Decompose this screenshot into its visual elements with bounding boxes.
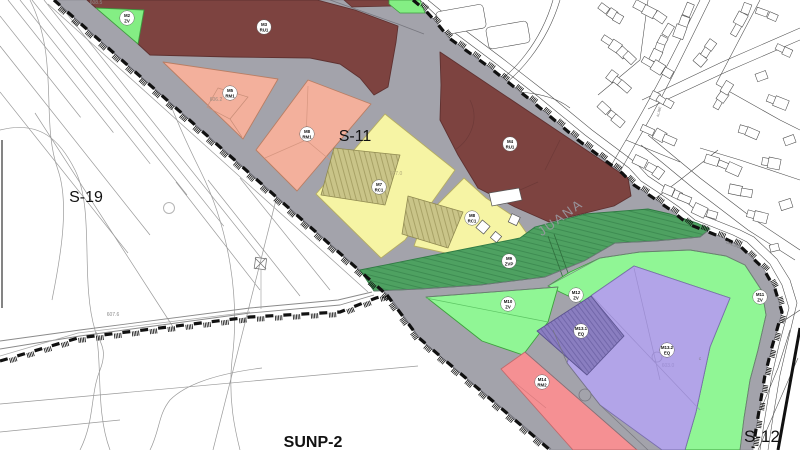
svg-text:M3: M3 xyxy=(261,22,268,27)
svg-text:RU1: RU1 xyxy=(260,27,269,32)
svg-text:SUNP-2: SUNP-2 xyxy=(284,434,343,450)
svg-text:S-19: S-19 xyxy=(69,189,103,206)
svg-text:RC1: RC1 xyxy=(468,218,477,223)
svg-text:ZVP: ZVP xyxy=(505,261,514,266)
svg-text:S-11: S-11 xyxy=(339,128,372,145)
svg-text:603.0: 603.0 xyxy=(662,363,675,369)
svg-text:606.2: 606.2 xyxy=(210,97,223,103)
svg-text:M7: M7 xyxy=(376,182,383,187)
svg-text:M8: M8 xyxy=(469,213,476,218)
svg-text:M13.2: M13.2 xyxy=(661,345,674,350)
svg-text:S-12: S-12 xyxy=(744,427,780,446)
svg-text:M8: M8 xyxy=(304,129,311,134)
svg-text:607.6: 607.6 xyxy=(107,312,120,318)
svg-text:RU1: RU1 xyxy=(506,144,515,149)
svg-text:RM2: RM2 xyxy=(537,382,547,387)
svg-text:M9: M9 xyxy=(506,256,513,261)
svg-text:EQ: EQ xyxy=(578,331,585,336)
svg-text:ZV: ZV xyxy=(573,295,579,300)
svg-text:ZV: ZV xyxy=(757,297,763,302)
svg-text:RM1: RM1 xyxy=(302,134,312,139)
svg-text:EQ: EQ xyxy=(664,350,671,355)
svg-text:M12: M12 xyxy=(572,290,581,295)
svg-text:M4: M4 xyxy=(507,139,514,144)
svg-text:ZV: ZV xyxy=(505,304,511,309)
svg-text:M5: M5 xyxy=(227,88,234,93)
svg-text:RM1: RM1 xyxy=(225,93,235,98)
svg-text:ZV: ZV xyxy=(124,18,130,23)
svg-text:RC1: RC1 xyxy=(375,187,384,192)
svg-text:M10: M10 xyxy=(504,299,513,304)
svg-text:608.5: 608.5 xyxy=(90,0,103,6)
svg-text:607.0: 607.0 xyxy=(390,171,403,177)
svg-text:M11: M11 xyxy=(756,292,765,297)
svg-text:M13.1: M13.1 xyxy=(575,326,588,331)
svg-text:M2: M2 xyxy=(124,13,131,18)
svg-text:M14: M14 xyxy=(538,377,547,382)
